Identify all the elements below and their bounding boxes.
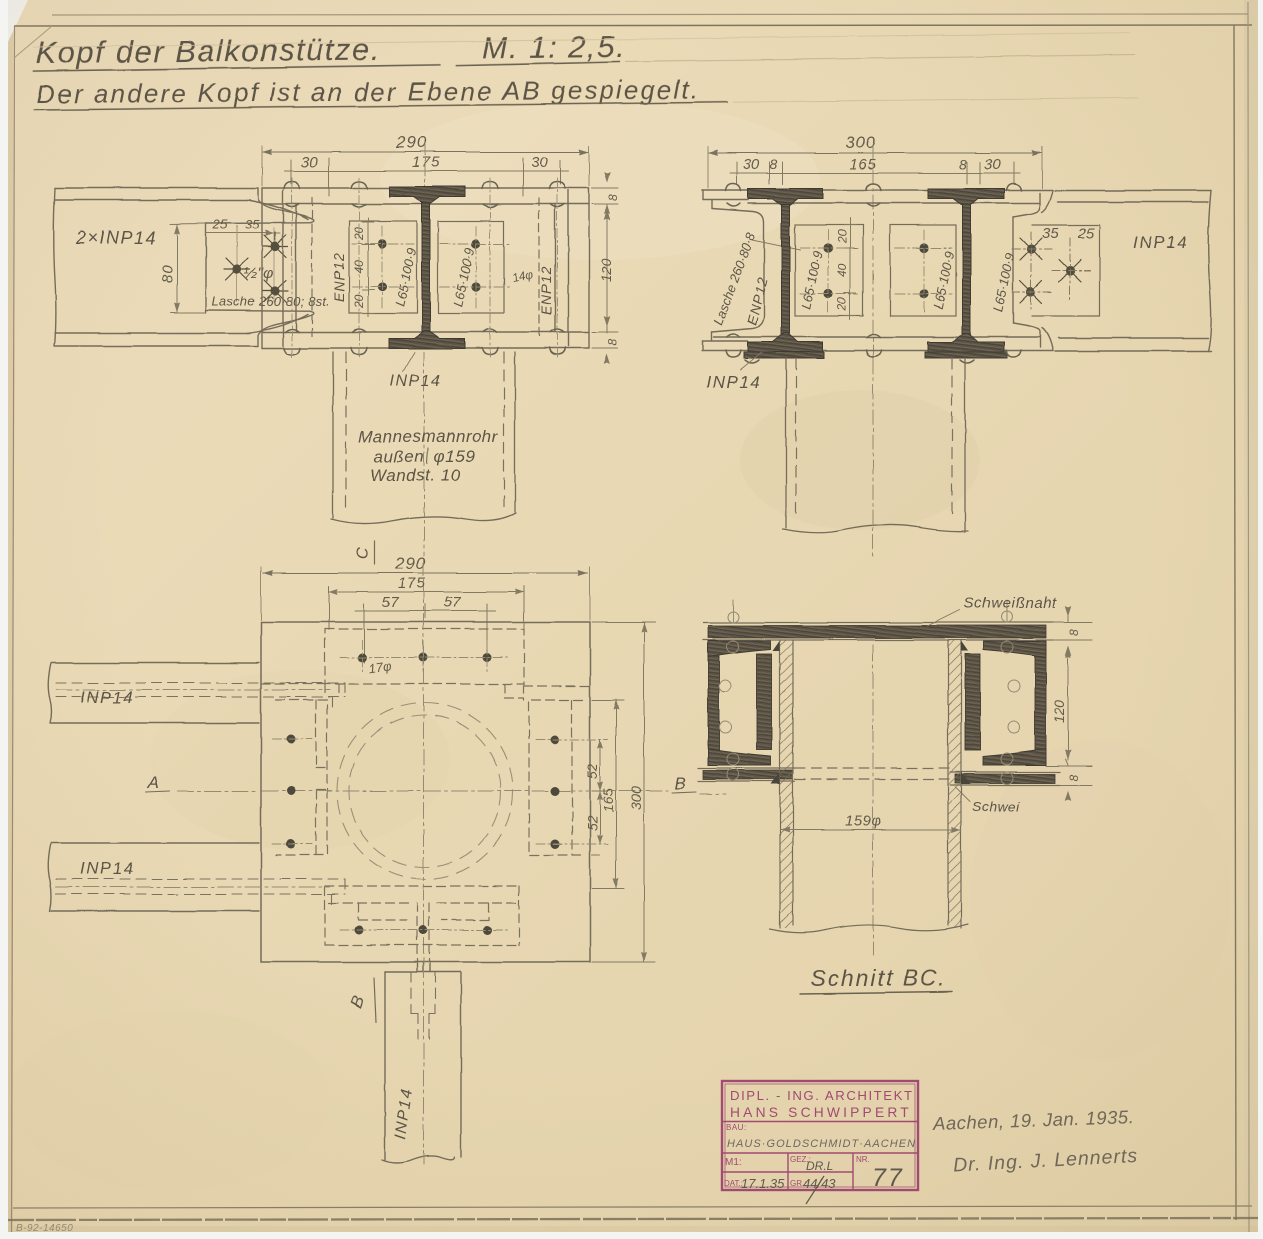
svg-text:B: B — [674, 774, 685, 793]
svg-text:77: 77 — [872, 1164, 904, 1192]
svg-text:300: 300 — [628, 786, 644, 810]
svg-text:30: 30 — [984, 156, 1001, 173]
svg-text:8: 8 — [606, 194, 620, 201]
svg-text:175: 175 — [398, 575, 426, 592]
svg-text:INP14: INP14 — [706, 373, 761, 392]
svg-text:Mannesmannrohr: Mannesmannrohr — [358, 427, 499, 446]
svg-text:80: 80 — [159, 264, 176, 283]
svg-text:HANS SCHWIPPERT: HANS SCHWIPPERT — [730, 1105, 912, 1120]
svg-text:8: 8 — [1067, 629, 1081, 636]
svg-text:290: 290 — [394, 554, 426, 573]
svg-text:INP14: INP14 — [390, 373, 442, 390]
svg-text:35: 35 — [245, 217, 260, 232]
svg-text:35: 35 — [1042, 225, 1059, 242]
svg-text:30: 30 — [301, 154, 318, 171]
svg-text:außen: außen — [374, 447, 425, 466]
svg-text:A: A — [147, 773, 159, 792]
svg-text:2×INP14: 2×INP14 — [75, 228, 157, 248]
svg-text:Wandst. 10: Wandst. 10 — [370, 466, 461, 485]
svg-text:52: 52 — [584, 815, 600, 831]
svg-text:DR.L: DR.L — [806, 1159, 833, 1173]
svg-text:40: 40 — [352, 260, 366, 274]
svg-text:½"φ: ½"φ — [244, 265, 273, 282]
svg-text:ENP12: ENP12 — [538, 266, 554, 315]
svg-text:INP14: INP14 — [80, 859, 135, 878]
svg-text:8: 8 — [606, 339, 620, 346]
svg-text:INP14: INP14 — [1133, 233, 1188, 252]
svg-text:BAU:: BAU: — [726, 1123, 747, 1132]
svg-text:20: 20 — [835, 297, 849, 312]
svg-text:NR.: NR. — [856, 1155, 870, 1164]
svg-text:120: 120 — [598, 258, 614, 282]
svg-text:HAUS·GOLDSCHMIDT·AACHEN: HAUS·GOLDSCHMIDT·AACHEN — [727, 1138, 916, 1150]
svg-text:40: 40 — [835, 263, 849, 277]
svg-text:165: 165 — [600, 788, 616, 812]
svg-text:300: 300 — [845, 133, 876, 152]
svg-text:M. 1: 2,5.: M. 1: 2,5. — [482, 29, 627, 66]
svg-text:25: 25 — [212, 217, 228, 232]
svg-text:DIPL. - ING. ARCHITEKT: DIPL. - ING. ARCHITEKT — [730, 1088, 914, 1103]
svg-text:20: 20 — [835, 229, 849, 244]
svg-text:Schnitt BC.: Schnitt BC. — [810, 965, 947, 991]
svg-text:φ159: φ159 — [434, 447, 475, 466]
svg-text:8: 8 — [959, 156, 967, 172]
svg-text:120: 120 — [1051, 699, 1067, 723]
svg-text:57: 57 — [382, 594, 399, 611]
svg-text:8: 8 — [1067, 774, 1081, 781]
svg-text:20: 20 — [352, 294, 366, 309]
svg-text:159φ: 159φ — [845, 813, 882, 830]
svg-text:57: 57 — [444, 594, 461, 611]
svg-text:30: 30 — [531, 154, 548, 171]
svg-text:M1:: M1: — [725, 1157, 742, 1168]
svg-text:25: 25 — [1077, 225, 1095, 242]
svg-text:Schwei: Schwei — [972, 799, 1021, 815]
svg-text:17.1.35: 17.1.35 — [741, 1176, 785, 1191]
svg-text:C: C — [354, 546, 372, 559]
svg-text:290: 290 — [395, 133, 427, 152]
svg-text:175: 175 — [412, 154, 440, 171]
svg-text:52: 52 — [584, 763, 600, 779]
svg-text:8: 8 — [770, 156, 778, 172]
svg-text:INP14: INP14 — [80, 688, 135, 707]
svg-text:20: 20 — [352, 226, 366, 241]
svg-text:ENP12: ENP12 — [331, 253, 347, 302]
svg-text:Schweißnaht: Schweißnaht — [964, 595, 1057, 612]
svg-text:30: 30 — [743, 156, 760, 173]
svg-text:Kopf der Balkonstütze.: Kopf der Balkonstütze. — [36, 31, 381, 70]
